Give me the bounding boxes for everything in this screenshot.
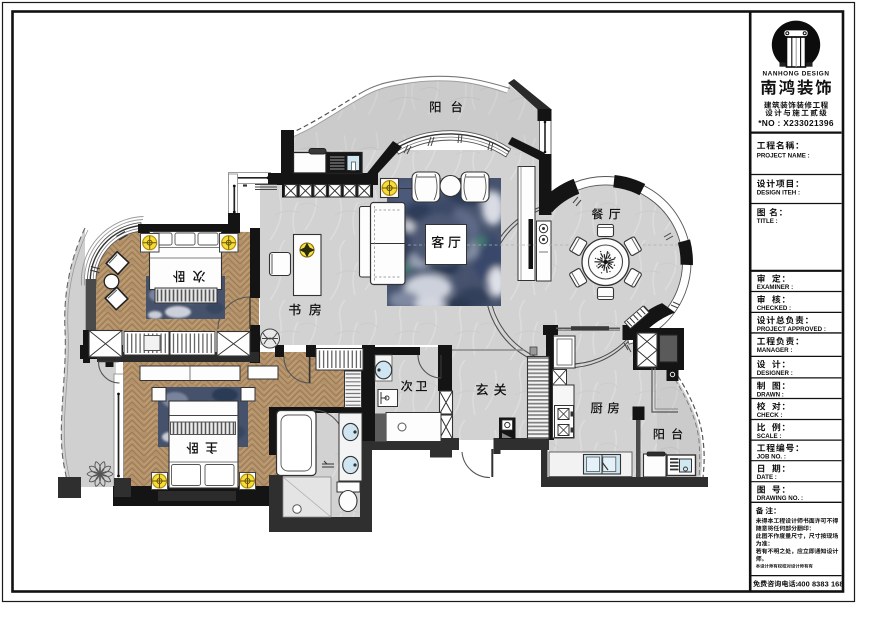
svg-text:DESIGN ITEH :: DESIGN ITEH : bbox=[757, 190, 800, 197]
svg-text:DESIGNER :: DESIGNER : bbox=[757, 370, 793, 377]
svg-text:PROJECT APPROVED :: PROJECT APPROVED : bbox=[757, 326, 826, 333]
svg-text:SCALE :: SCALE : bbox=[757, 433, 782, 440]
svg-text:NANHONG DESIGN: NANHONG DESIGN bbox=[763, 71, 830, 78]
svg-text:JOB NO. :: JOB NO. : bbox=[757, 454, 786, 461]
svg-text:DRAWING NO. :: DRAWING NO. : bbox=[757, 495, 803, 502]
svg-text:DRAWN :: DRAWN : bbox=[757, 391, 784, 398]
svg-text:MANAGER :: MANAGER : bbox=[757, 347, 793, 354]
svg-text:CHECK :: CHECK : bbox=[757, 412, 783, 419]
svg-text:*NO : X233021396: *NO : X233021396 bbox=[758, 118, 834, 128]
svg-text:TITLE :: TITLE : bbox=[757, 218, 778, 225]
svg-text:400 8383 168: 400 8383 168 bbox=[797, 579, 843, 588]
svg-text:DATE :: DATE : bbox=[757, 474, 777, 481]
svg-text:EXAMINER :: EXAMINER : bbox=[757, 284, 793, 291]
svg-text:CHECKED :: CHECKED : bbox=[757, 305, 791, 312]
svg-text:PROJECT NAME :: PROJECT NAME : bbox=[757, 152, 810, 159]
